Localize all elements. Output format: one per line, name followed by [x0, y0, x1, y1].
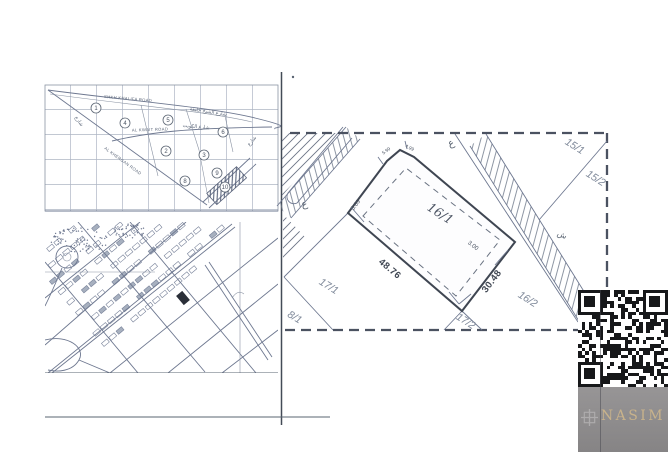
qr-module — [592, 344, 596, 348]
qr-module — [618, 322, 622, 326]
map-texture-dot — [89, 246, 90, 247]
dimension-corner-b: 4.99 — [405, 143, 416, 152]
map-texture-dot — [80, 240, 81, 241]
neighbor-label-15-1: 15/1 — [563, 136, 587, 157]
scan-canvas: SHKH KHALIFA ROAD شارع الشيخ خليفة AL KW… — [0, 0, 668, 452]
map-building — [64, 265, 72, 273]
map-texture-dot — [116, 233, 117, 234]
map-building — [173, 261, 181, 269]
qr-module — [654, 376, 658, 380]
map-texture-dot — [134, 234, 135, 235]
map-texture-dot — [59, 233, 60, 234]
map-building — [116, 327, 124, 335]
map-texture-dot — [115, 229, 116, 230]
map-texture-dot — [65, 241, 66, 242]
site-plan: 16/1 48.76 30.48 3.89 3.00 5.99 4.99 15/… — [277, 127, 608, 332]
dimension-long: 48.76 — [376, 257, 403, 282]
map-texture-dot — [83, 244, 84, 245]
map-building — [142, 269, 150, 277]
map-building — [68, 226, 76, 234]
map-texture-dot — [51, 242, 52, 243]
map-texture-dot — [58, 241, 59, 242]
map-building — [154, 224, 162, 232]
map-texture-dot — [54, 235, 55, 236]
qr-module — [646, 330, 650, 334]
qr-module — [607, 366, 611, 370]
map-building — [107, 316, 115, 324]
qr-module — [643, 340, 647, 344]
map-building — [135, 276, 143, 284]
map-texture-dot — [60, 242, 61, 243]
map-texture-dot — [88, 245, 89, 246]
map-texture-dot — [105, 236, 106, 237]
map-building — [115, 222, 123, 230]
map-texture-dot — [94, 236, 95, 237]
qr-module — [585, 358, 589, 362]
qr-module — [592, 358, 596, 362]
qr-module — [621, 380, 625, 384]
map-texture-dot — [119, 229, 120, 230]
map-texture-dot — [141, 228, 142, 229]
street-letter-top: ع — [446, 137, 455, 149]
qr-module — [628, 326, 632, 330]
qr-module — [610, 362, 614, 366]
map-building — [193, 227, 201, 235]
map-texture-dot — [80, 227, 81, 228]
map-building — [75, 308, 83, 316]
map-building — [147, 230, 155, 238]
map-building — [118, 255, 126, 263]
map-texture-dot — [118, 234, 119, 235]
map-texture-dot — [73, 228, 74, 229]
map-building — [80, 269, 88, 277]
map-texture-dot — [87, 240, 88, 241]
map-texture-dot — [86, 243, 87, 244]
map-texture-dot — [62, 239, 63, 240]
map-building — [67, 298, 75, 306]
qr-module — [585, 351, 589, 355]
neighbor-label-8-1: 8/1 — [285, 308, 304, 326]
dimension-corner-a: 5.99 — [381, 146, 392, 155]
map-building — [138, 308, 146, 316]
map-building — [182, 272, 190, 280]
map-texture-dot — [88, 248, 89, 249]
overview-map: SHKH KHALIFA ROAD شارع الشيخ خليفة AL KW… — [45, 85, 281, 211]
map-texture-dot — [72, 230, 73, 231]
qr-module — [643, 376, 647, 380]
map-texture-dot — [82, 237, 83, 238]
map-texture-dot — [80, 239, 81, 240]
map-building — [174, 278, 182, 286]
map-building — [73, 275, 81, 283]
map-texture-dot — [127, 225, 128, 226]
map-texture-dot — [79, 244, 80, 245]
qr-module — [607, 294, 611, 298]
qr-module — [603, 351, 607, 355]
window-lattice-icon — [581, 409, 598, 426]
map-building — [96, 273, 104, 281]
map-building — [99, 306, 107, 314]
fold-line — [600, 290, 601, 452]
map-texture-dot — [76, 231, 77, 232]
brand-name: NASIM — [601, 409, 665, 423]
map-texture-dot — [57, 239, 58, 240]
map-texture-dot — [96, 231, 97, 232]
qr-module — [639, 330, 643, 334]
map-building — [113, 294, 121, 302]
map-building — [132, 243, 140, 251]
map-building — [126, 265, 134, 273]
qr-module — [607, 380, 611, 384]
map-building — [160, 290, 168, 298]
map-building — [179, 239, 187, 247]
qr-module — [603, 319, 607, 323]
qr-module — [664, 358, 668, 362]
qr-code — [578, 290, 668, 387]
map-building — [186, 233, 194, 241]
map-texture-dot — [126, 228, 127, 229]
map-texture-dot — [63, 231, 64, 232]
map-texture-dot — [77, 238, 78, 239]
qr-module — [610, 304, 614, 308]
qr-finder-top-right — [643, 290, 668, 315]
map-building — [89, 279, 97, 287]
qr-module — [625, 355, 629, 359]
map-texture-dot — [63, 229, 64, 230]
qr-module — [664, 348, 668, 352]
map-texture-dot — [71, 251, 72, 252]
highlighted-building — [176, 291, 190, 305]
qr-module — [639, 297, 643, 301]
map-texture-dot — [101, 238, 102, 239]
map-texture-dot — [62, 233, 63, 234]
map-texture-dot — [76, 240, 77, 241]
map-building — [152, 296, 160, 304]
map-building — [106, 300, 114, 308]
scanned-plot-document: SHKH KHALIFA ROAD شارع الشيخ خليفة AL KW… — [0, 0, 668, 452]
map-building — [171, 245, 179, 253]
neighbor-label-17-1: 17/1 — [317, 276, 341, 297]
qr-module — [603, 304, 607, 308]
map-building — [164, 251, 172, 259]
map-texture-dot — [82, 241, 83, 242]
map-texture-dot — [68, 229, 69, 230]
map-texture-dot — [141, 233, 142, 234]
map-texture-dot — [127, 235, 128, 236]
qr-module — [650, 337, 654, 341]
qr-module — [614, 355, 618, 359]
brand-box: NASIM — [578, 387, 668, 452]
qr-module — [625, 376, 629, 380]
map-texture-dot — [132, 237, 133, 238]
qr-module — [636, 301, 640, 305]
map-texture-dot — [104, 238, 105, 239]
map-texture-dot — [116, 234, 117, 235]
map-texture-dot — [106, 237, 107, 238]
map-texture-dot — [74, 245, 75, 246]
qr-module — [636, 290, 640, 294]
map-texture-dot — [119, 236, 120, 237]
qr-module — [657, 322, 661, 326]
city-double-road — [205, 262, 272, 360]
neighbor-label-15-2: 15/2 — [584, 168, 608, 189]
map-texture-dot — [125, 237, 126, 238]
map-texture-dot — [99, 249, 100, 250]
map-texture-dot — [81, 231, 82, 232]
map-mark — [232, 292, 244, 298]
qr-module — [661, 351, 665, 355]
map-building — [58, 287, 66, 295]
scan-speck — [292, 76, 294, 78]
map-building — [195, 243, 203, 251]
map-texture-dot — [78, 230, 79, 231]
qr-module — [664, 373, 668, 377]
map-texture-dot — [102, 245, 103, 246]
map-building — [134, 259, 142, 267]
qr-module — [628, 340, 632, 344]
map-texture-dot — [87, 229, 88, 230]
map-texture-dot — [126, 226, 127, 227]
map-building — [131, 315, 139, 323]
map-texture-dot — [136, 226, 137, 227]
map-building — [47, 244, 55, 252]
qr-module — [621, 315, 625, 319]
map-texture-dot — [58, 243, 59, 244]
map-texture-dot — [60, 238, 61, 239]
map-texture-dot — [87, 246, 88, 247]
neighbor-label-16-2: 16/2 — [516, 289, 540, 310]
map-building — [187, 249, 195, 257]
map-building — [121, 288, 129, 296]
street-letter-right: ش — [556, 229, 569, 241]
qr-module — [646, 351, 650, 355]
map-texture-dot — [143, 233, 144, 234]
map-texture-dot — [114, 227, 115, 228]
map-building — [167, 284, 175, 292]
map-texture-dot — [60, 232, 61, 233]
city-map-buildings — [47, 222, 225, 347]
map-texture-dot — [143, 228, 144, 229]
map-texture-dot — [74, 251, 75, 252]
map-building — [150, 263, 158, 271]
map-texture-dot — [122, 228, 123, 229]
plot-number: 10 — [222, 185, 229, 191]
city-map — [45, 222, 278, 373]
map-texture-dot — [86, 245, 87, 246]
qr-module — [636, 340, 640, 344]
map-texture-dot — [86, 250, 87, 251]
qr-module — [664, 333, 668, 337]
qr-module — [589, 337, 593, 341]
map-texture-dot — [127, 224, 128, 225]
qr-module — [661, 340, 665, 344]
hatched-area-lower-left — [283, 214, 305, 259]
map-building — [125, 249, 133, 257]
map-texture-dot — [80, 251, 81, 252]
map-building — [81, 285, 89, 293]
map-texture-dot — [114, 231, 115, 232]
qr-module — [618, 297, 622, 301]
map-texture-dot — [55, 233, 56, 234]
map-texture-dot — [82, 248, 83, 249]
map-building — [92, 224, 100, 232]
map-texture-dot — [133, 230, 134, 231]
qr-module — [650, 326, 654, 330]
street-letter-left: ع — [300, 198, 309, 210]
map-texture-dot — [85, 246, 86, 247]
map-texture-dot — [96, 245, 97, 246]
map-texture-dot — [57, 236, 58, 237]
map-building — [101, 339, 109, 347]
map-texture-dot — [84, 239, 85, 240]
qr-module — [614, 315, 618, 319]
map-texture-dot — [105, 245, 106, 246]
qr-module — [632, 312, 636, 316]
map-texture-dot — [117, 226, 118, 227]
qr-module — [664, 366, 668, 370]
map-texture-dot — [129, 235, 130, 236]
map-texture-dot — [122, 233, 123, 234]
map-texture-dot — [100, 237, 101, 238]
map-texture-dot — [76, 241, 77, 242]
map-texture-dot — [130, 225, 131, 226]
map-building — [189, 266, 197, 274]
